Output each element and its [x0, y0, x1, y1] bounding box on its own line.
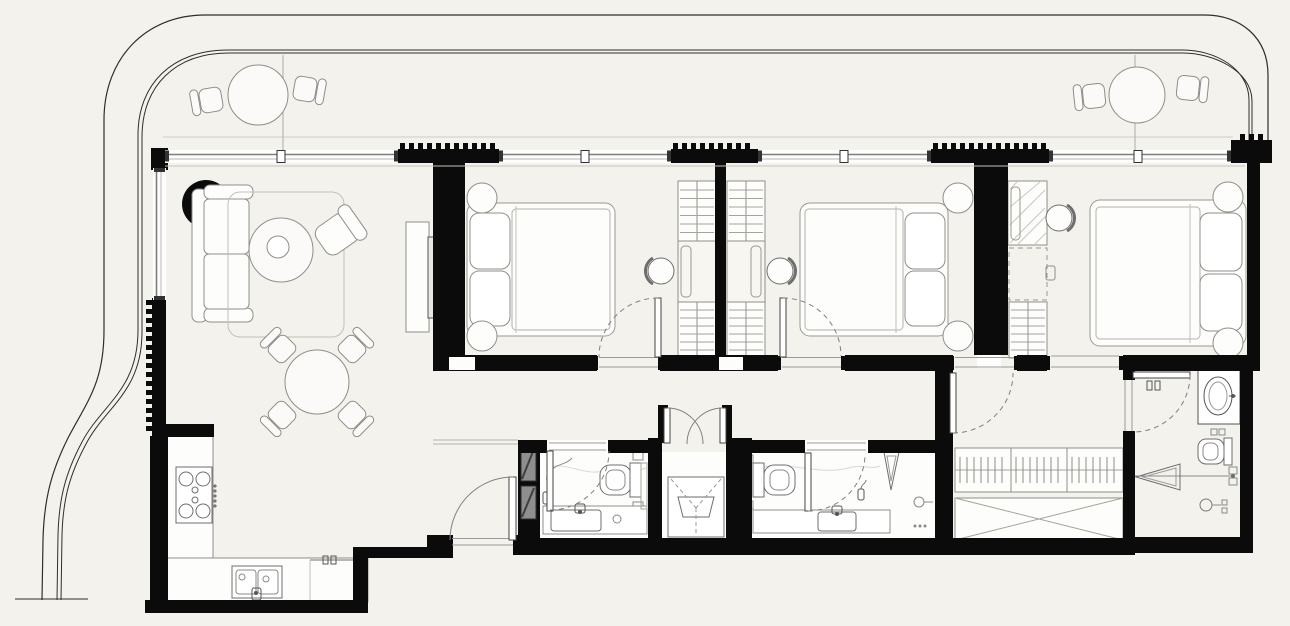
wall-bath1-top: [518, 440, 547, 453]
wall-kitchen-bottom: [145, 600, 368, 613]
hallway: [433, 440, 518, 444]
wall-insulation-teeth: [490, 143, 495, 149]
laundry-door-leaf: [720, 408, 726, 443]
wall-ensuite-left: [1123, 431, 1135, 545]
door-post: [1045, 356, 1050, 370]
entry-door-swing: [450, 477, 513, 540]
wall-insulation-teeth: [146, 345, 152, 350]
faucet-dot: [578, 510, 582, 514]
wall-insulation-teeth: [718, 143, 723, 149]
window-post: [165, 151, 169, 162]
wall-corner: [1231, 140, 1272, 163]
pillow: [905, 213, 945, 269]
laundry-door-leaf: [664, 408, 670, 443]
terrace-chair-back: [1073, 84, 1084, 111]
wall-insulation-teeth: [978, 143, 983, 149]
faucet-dot: [835, 512, 839, 516]
terrace-chair: [1082, 83, 1106, 109]
entry-door-leaf: [509, 477, 516, 540]
wall-insulation-teeth: [146, 408, 152, 413]
wall-insulation-teeth: [1014, 143, 1019, 149]
bathroom-2-door-leaf: [805, 453, 811, 511]
wall-insulation-teeth: [996, 143, 1001, 149]
living-room: [182, 180, 435, 438]
laundry-door-swing: [687, 408, 723, 444]
wall-insulation-teeth: [933, 143, 938, 149]
wall-insulation-teeth: [146, 318, 152, 323]
faucet-dot: [1231, 394, 1235, 398]
window-mullion: [581, 151, 589, 163]
closet-door-leaf: [950, 373, 956, 433]
wall-laundry-right: [726, 438, 752, 553]
wall-insulation-teeth: [481, 143, 486, 149]
floor-plan-page: [0, 0, 1290, 626]
wall-insulation-teeth: [1240, 134, 1245, 140]
bedroom-3: [1008, 181, 1246, 358]
wall-insulation-teeth: [400, 143, 405, 149]
nightstand: [943, 321, 973, 351]
wall-insulation-teeth: [146, 417, 152, 422]
wall-insulation-teeth: [409, 143, 414, 149]
window-post: [154, 296, 165, 300]
wall-insulation-teeth: [418, 143, 423, 149]
desk-chair: [767, 258, 793, 284]
wall-insulation-teeth: [146, 426, 152, 431]
wall-insulation-teeth: [1032, 143, 1037, 149]
wall-laundry-left: [648, 438, 662, 553]
wall-insulation-teeth: [146, 363, 152, 368]
window-post: [154, 168, 165, 172]
window-post: [667, 151, 671, 162]
nightstand: [467, 321, 497, 351]
pillow: [470, 213, 510, 269]
wall-pier: [671, 149, 758, 163]
wall-insulation-teeth: [942, 143, 947, 149]
wall-insulation-teeth: [146, 327, 152, 332]
nightstand: [1213, 328, 1243, 358]
bedroom-2-door-leaf: [780, 298, 786, 357]
desk-chair: [1046, 205, 1072, 231]
terrace-chair: [1176, 75, 1200, 101]
bedroom-2: [727, 181, 973, 358]
drain-mark: [919, 525, 922, 528]
wall-insulation-teeth: [1005, 143, 1010, 149]
wall-pier: [398, 149, 499, 163]
wall-insulation-teeth: [987, 143, 992, 149]
desk: [727, 241, 765, 302]
door-post: [658, 356, 663, 370]
wall-insulation-teeth: [673, 143, 678, 149]
pillow: [1200, 274, 1242, 331]
wall-insulation-teeth: [146, 336, 152, 341]
pillow: [905, 271, 945, 326]
vanity-counter: [753, 510, 890, 533]
wall-insulation-teeth: [146, 300, 152, 305]
wall-insulation-teeth: [146, 372, 152, 377]
wall-insulation-teeth: [454, 143, 459, 149]
wall-insulation-teeth: [1258, 134, 1263, 140]
wall-insulation-teeth: [146, 399, 152, 404]
drain-mark: [924, 525, 927, 528]
wall-insulation-teeth: [969, 143, 974, 149]
wall-fitting: [1229, 478, 1237, 485]
wall-fitting: [1211, 429, 1217, 435]
cooktop-knob: [213, 494, 216, 497]
kitchen: [167, 434, 368, 602]
wall-entry-post: [427, 535, 453, 555]
wall-ensuite-bottom: [1123, 537, 1253, 553]
door-post: [593, 356, 598, 370]
floor-drain: [1200, 499, 1212, 511]
pillow: [1200, 213, 1242, 271]
wall-insulation-teeth: [1023, 143, 1028, 149]
wall-left-lower: [150, 436, 168, 613]
wall-pier: [931, 149, 1049, 163]
wall-insulation-teeth: [1249, 134, 1254, 140]
wall-bath1-top: [608, 440, 648, 453]
window-post: [1049, 151, 1053, 162]
cooktop-knob: [213, 504, 216, 507]
window-mullion: [1134, 151, 1142, 163]
ensuite-door-swing: [1133, 375, 1190, 432]
terrace-table-left: [228, 65, 288, 125]
door-post: [1119, 356, 1124, 370]
pillow: [470, 271, 510, 326]
wall-insulation-teeth: [146, 381, 152, 386]
wall-insulation-teeth: [727, 143, 732, 149]
coffee-table-tray: [267, 236, 289, 258]
wall-insulation-teeth: [463, 143, 468, 149]
dining-table: [285, 350, 349, 414]
terrace-chair-back: [1199, 76, 1210, 103]
wall-bedroom-bottom: [845, 355, 953, 371]
wall-insulation-teeth: [709, 143, 714, 149]
laundry: [668, 477, 724, 537]
wall-insulation-teeth: [960, 143, 965, 149]
wall-niche: [977, 355, 1001, 368]
ensuite-door-leaf: [1133, 372, 1190, 378]
nightstand: [943, 183, 973, 213]
wall-bed1-left: [433, 163, 465, 355]
window-post: [1227, 151, 1231, 162]
wall-bed2-bed3: [974, 163, 1008, 355]
drain-mark: [1222, 508, 1227, 513]
nightstand: [467, 183, 497, 213]
bathroom-2-door-gap: [805, 440, 868, 453]
terrace-chair: [292, 75, 318, 102]
wall-left: [152, 298, 166, 438]
wall-right: [1247, 163, 1260, 365]
wall-insulation-teeth: [736, 143, 741, 149]
door-handle-mark: [1147, 381, 1152, 390]
sofa-cushion: [204, 199, 249, 254]
wall-insulation-teeth: [472, 143, 477, 149]
sink-faucet-dot: [254, 591, 258, 595]
terrace-chair: [198, 86, 224, 113]
wall-bedroom-bottom: [1123, 355, 1260, 371]
wall-closet-bottom: [935, 538, 1135, 555]
wall-insulation-teeth: [445, 143, 450, 149]
shower-dot: [1231, 474, 1235, 478]
balcony: [163, 55, 1233, 150]
cooktop-knob: [213, 499, 216, 502]
cooktop: [176, 467, 212, 523]
toilet-tank: [753, 463, 764, 497]
bathroom-1-door-gap: [547, 440, 608, 453]
wall-niche: [449, 357, 475, 370]
wall-right-lower: [1240, 365, 1253, 553]
wall-insulation-teeth: [146, 390, 152, 395]
window-post: [394, 151, 398, 162]
door-post: [1014, 356, 1019, 370]
shower-head-inner: [1143, 468, 1176, 486]
window-post: [499, 151, 503, 162]
drain-mark: [1222, 500, 1227, 505]
laundry-door-swing: [667, 408, 703, 444]
window-mullion: [840, 151, 848, 163]
wall-insulation-teeth: [1041, 143, 1046, 149]
nightstand: [1213, 182, 1243, 212]
wall-insulation-teeth: [436, 143, 441, 149]
cooktop-knob: [213, 484, 216, 487]
door-handle-mark: [1155, 381, 1160, 390]
wall-insulation-teeth: [691, 143, 696, 149]
desk: [1008, 181, 1047, 245]
wall-insulation-teeth: [146, 309, 152, 314]
window-post: [927, 151, 931, 162]
tv-console: [406, 222, 429, 332]
door-post: [841, 356, 846, 370]
wall-fitting: [1219, 429, 1225, 435]
wall-insulation-teeth: [951, 143, 956, 149]
drain-mark: [914, 525, 917, 528]
window-frame-left: [153, 168, 166, 300]
bedroom-1-door-leaf: [655, 298, 661, 357]
wall-insulation-teeth: [700, 143, 705, 149]
closet-door-swing: [953, 373, 1013, 433]
wall-bed1-bed2: [715, 163, 726, 355]
toilet-tank: [1224, 438, 1232, 465]
wall-insulation-teeth: [682, 143, 687, 149]
wall-tab: [1240, 469, 1252, 482]
wall-insulation-teeth: [745, 143, 750, 149]
bathroom-1-door-leaf: [547, 451, 553, 511]
wall-fitting: [1229, 467, 1237, 474]
cooktop-knob: [213, 489, 216, 492]
overhead-cabinet-dashed: [1009, 248, 1047, 300]
desk: [678, 241, 716, 302]
wall-bedroom-bottom: [1017, 355, 1047, 371]
ensuite: [1128, 368, 1240, 513]
wall-insulation-teeth: [427, 143, 432, 149]
wall-niche: [719, 357, 743, 370]
window-mullion: [277, 151, 285, 163]
window-post: [758, 151, 762, 162]
door-post: [776, 356, 781, 370]
sofa-cushion: [204, 254, 249, 309]
balcony-furniture: [189, 65, 1209, 125]
walk-in-closet: [955, 448, 1123, 540]
terrace-table-right: [1109, 67, 1165, 123]
wall-bath2-top: [752, 440, 805, 453]
floor-plan-canvas: [0, 0, 1290, 626]
wall-insulation-teeth: [146, 354, 152, 359]
door-post: [949, 356, 954, 370]
desk-chair: [648, 258, 674, 284]
bedroom-1: [467, 181, 716, 358]
toilet-tank: [630, 463, 641, 497]
wall-kitchen-stub: [152, 424, 214, 437]
